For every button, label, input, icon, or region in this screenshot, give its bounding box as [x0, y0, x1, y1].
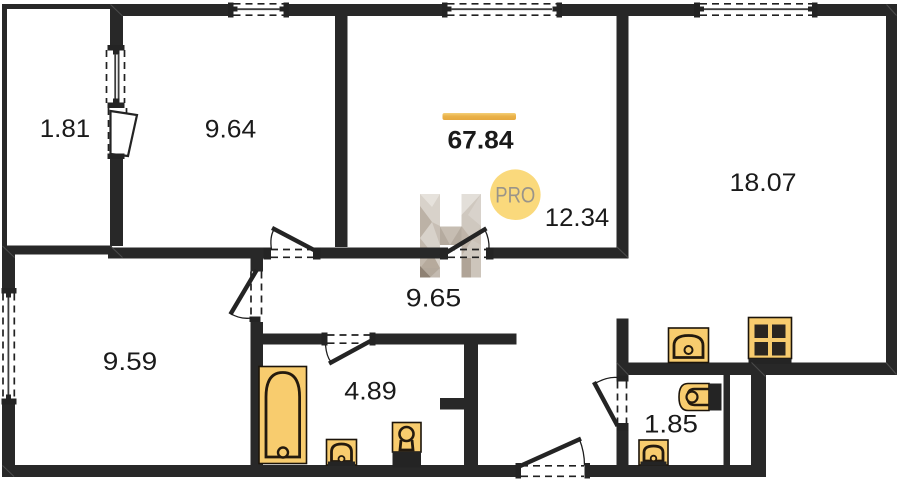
svg-text:18.07: 18.07 — [730, 169, 797, 197]
svg-text:67.84: 67.84 — [448, 126, 514, 154]
svg-text:9.64: 9.64 — [205, 115, 257, 143]
svg-text:12.34: 12.34 — [545, 204, 610, 232]
svg-text:9.59: 9.59 — [103, 348, 158, 376]
svg-text:1.81: 1.81 — [40, 115, 91, 143]
svg-text:1.85: 1.85 — [644, 411, 698, 439]
svg-text:9.65: 9.65 — [406, 285, 462, 313]
svg-text:4.89: 4.89 — [344, 378, 397, 406]
svg-text:PRO: PRO — [495, 183, 535, 208]
